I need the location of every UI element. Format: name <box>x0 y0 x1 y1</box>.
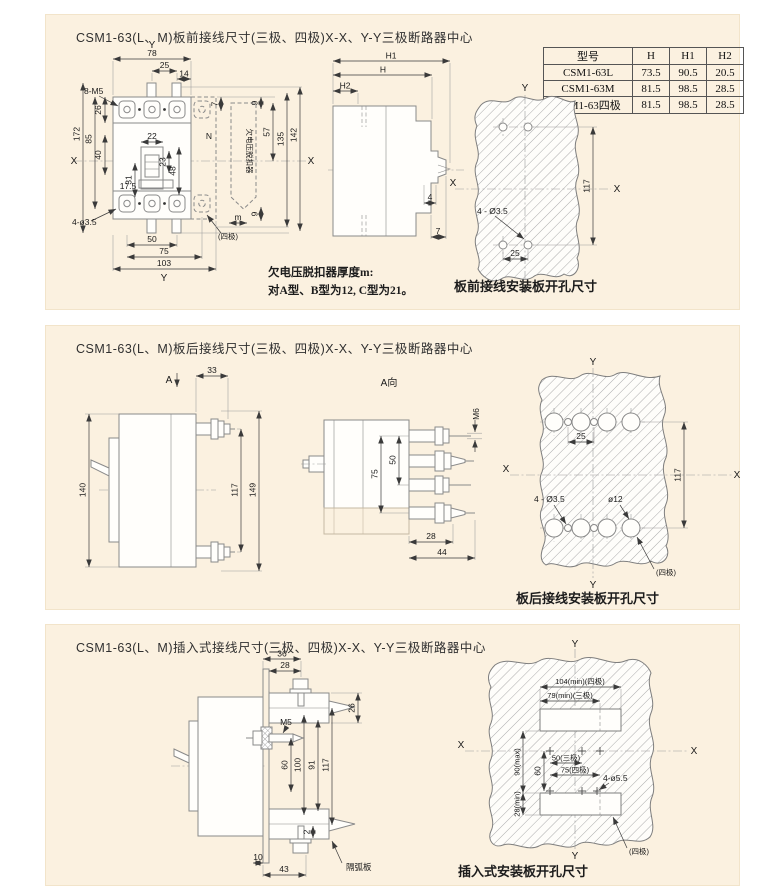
svg-text:75: 75 <box>370 469 380 479</box>
dimension-labels: 36 28 26 M5 60 100 91 117 2 10 43 隔弧板 <box>253 649 372 875</box>
svg-text:7: 7 <box>436 226 441 236</box>
rear-mounting-plate-drawing: Y Y X X 25 117 4 - Ø3.5 ø12 (四极) <box>504 360 739 592</box>
svg-text:44: 44 <box>437 547 447 557</box>
svg-text:4-ø3.5: 4-ø3.5 <box>72 217 97 227</box>
svg-text:25: 25 <box>160 60 170 70</box>
svg-text:90(max): 90(max) <box>513 748 522 776</box>
svg-text:4-ø5.5: 4-ø5.5 <box>603 773 628 783</box>
svg-text:(四极): (四极) <box>218 231 238 241</box>
four-pole-dashed-outline <box>191 97 216 219</box>
svg-text:7: 7 <box>210 101 220 106</box>
svg-text:m: m <box>234 212 241 222</box>
panel-plug-in-wiring: CSM1-63(L、M)插入式接线尺寸(三极、四极)X-X、Y-Y三极断路器中心 <box>45 624 740 886</box>
svg-text:85: 85 <box>84 134 94 144</box>
svg-text:ø12: ø12 <box>608 494 623 504</box>
note-line-1: 欠电压脱扣器厚度m: <box>268 265 413 283</box>
svg-text:75: 75 <box>159 246 169 256</box>
svg-text:135: 135 <box>276 132 286 146</box>
svg-text:117: 117 <box>673 468 683 482</box>
svg-text:43: 43 <box>279 864 289 874</box>
rear-side-view-drawing: A 33 140 117 149 <box>71 366 296 581</box>
n-pole-label: N <box>206 131 212 141</box>
svg-text:隔弧板: 隔弧板 <box>346 862 372 872</box>
panel2-title: CSM1-63(L、M)板后接线尺寸(三极、四极)X-X、Y-Y三极断路器中心 <box>76 338 473 357</box>
note-line-2: 对A型、B型为12, C型为21。 <box>268 283 413 301</box>
svg-text:28: 28 <box>280 660 290 670</box>
svg-text:X: X <box>503 464 510 475</box>
svg-text:17.5: 17.5 <box>120 181 137 191</box>
svg-text:25: 25 <box>576 431 586 441</box>
plug-in-side-view-drawing: 36 28 26 M5 60 100 91 117 2 10 43 隔弧板 <box>166 651 466 881</box>
col-h2: H2 <box>707 48 744 65</box>
side-view-drawing: H1 H H2 4 7 <box>328 53 468 265</box>
svg-text:57: 57 <box>262 127 272 137</box>
svg-text:100: 100 <box>293 758 303 772</box>
svg-text:50: 50 <box>388 455 398 465</box>
svg-text:X: X <box>734 470 741 481</box>
catalog-page: CSM1-63(L、M)板前接线尺寸(三极、四极)X-X、Y-Y三极断路器中心 <box>0 0 780 893</box>
breaker-side-outline <box>333 106 450 236</box>
svg-text:117: 117 <box>321 758 331 772</box>
panel-rear-wiring: CSM1-63(L、M)板后接线尺寸(三极、四极)X-X、Y-Y三极断路器中心 <box>45 325 740 610</box>
svg-text:X: X <box>691 746 698 757</box>
panel-front-wiring: CSM1-63(L、M)板前接线尺寸(三极、四极)X-X、Y-Y三极断路器中心 <box>45 14 740 310</box>
svg-text:103: 103 <box>157 258 171 268</box>
col-h1: H1 <box>670 48 707 65</box>
svg-text:50: 50 <box>147 234 157 244</box>
svg-text:60: 60 <box>280 760 290 770</box>
svg-text:78: 78 <box>147 48 157 58</box>
svg-text:X: X <box>308 156 315 167</box>
front-mounting-plate-drawing: Y Y X X 117 4 - Ø3.5 25 <box>451 83 631 295</box>
svg-text:A: A <box>166 375 173 386</box>
svg-text:79(min)(三极): 79(min)(三极) <box>547 690 593 700</box>
svg-text:Y: Y <box>522 83 529 94</box>
svg-text:149: 149 <box>248 483 258 497</box>
svg-text:117: 117 <box>230 483 240 497</box>
svg-text:117: 117 <box>582 179 592 193</box>
svg-text:4 - Ø3.5: 4 - Ø3.5 <box>534 494 565 504</box>
svg-text:H2: H2 <box>340 81 351 91</box>
svg-text:(四极): (四极) <box>656 567 676 577</box>
svg-text:(四极): (四极) <box>629 846 649 856</box>
breaker-outline <box>91 414 196 567</box>
svg-text:50(三极): 50(三极) <box>552 753 581 763</box>
svg-text:X: X <box>458 740 465 751</box>
col-model: 型号 <box>544 48 633 65</box>
plug-in-mounting-plate-drawing: Y Y X X 104(min)(四极) 79(min)(三极) 50(三极) … <box>459 641 704 867</box>
svg-text:75(四极): 75(四极) <box>561 765 590 775</box>
svg-text:172: 172 <box>72 127 82 141</box>
svg-text:9: 9 <box>250 211 260 216</box>
svg-text:H1: H1 <box>386 51 397 61</box>
svg-text:40: 40 <box>93 150 103 160</box>
svg-text:4 - Ø3.5: 4 - Ø3.5 <box>477 206 508 216</box>
svg-text:9: 9 <box>250 100 260 105</box>
front-plate-caption: 板前接线安装板开孔尺寸 <box>454 276 597 295</box>
svg-text:28: 28 <box>426 531 436 541</box>
svg-text:25: 25 <box>510 248 520 258</box>
svg-text:8-M5: 8-M5 <box>84 86 104 96</box>
body-outline <box>301 420 409 534</box>
svg-text:36: 36 <box>277 649 287 659</box>
svg-text:Y: Y <box>161 273 168 284</box>
a-view-drawing: A向 M6 50 75 28 44 <box>301 372 496 577</box>
svg-text:91: 91 <box>307 760 317 770</box>
svg-text:22: 22 <box>147 131 157 141</box>
breaker-outline <box>174 697 263 836</box>
svg-text:14: 14 <box>179 69 189 79</box>
svg-text:X: X <box>71 156 78 167</box>
svg-text:60: 60 <box>533 766 543 776</box>
svg-text:10: 10 <box>253 852 263 862</box>
uv-release-label: 欠电压脱扣器 <box>245 129 255 174</box>
svg-text:X: X <box>450 178 457 189</box>
svg-text:2: 2 <box>302 829 312 834</box>
table-row: CSM1-63L73.590.520.5 <box>544 65 744 81</box>
svg-text:23: 23 <box>158 157 168 167</box>
table-header-row: 型号 H H1 H2 <box>544 48 744 65</box>
rear-terminal-studs <box>409 427 475 523</box>
uv-release-note: 欠电压脱扣器厚度m: 对A型、B型为12, C型为21。 <box>268 265 413 301</box>
rear-plate-caption: 板后接线安装板开孔尺寸 <box>516 588 659 607</box>
svg-text:142: 142 <box>289 128 299 142</box>
svg-text:26: 26 <box>347 703 357 713</box>
svg-text:Y: Y <box>590 357 597 368</box>
svg-text:X: X <box>614 184 621 195</box>
svg-text:48: 48 <box>168 166 178 176</box>
hatched-plate <box>539 372 669 566</box>
svg-text:104(min)(四极): 104(min)(四极) <box>555 676 605 686</box>
col-h: H <box>633 48 670 65</box>
svg-text:28(min): 28(min) <box>513 791 522 817</box>
svg-text:M5: M5 <box>280 717 292 727</box>
plug-in-plate-caption: 插入式安装板开孔尺寸 <box>458 861 588 880</box>
svg-text:M6: M6 <box>471 408 481 420</box>
front-view-drawing: N 欠电压脱扣器 <box>71 39 321 291</box>
svg-text:140: 140 <box>78 483 88 497</box>
svg-text:Y: Y <box>572 639 579 650</box>
svg-text:A向: A向 <box>381 376 398 389</box>
svg-text:26: 26 <box>93 105 103 115</box>
svg-text:4: 4 <box>428 192 433 202</box>
svg-text:33: 33 <box>207 365 217 375</box>
svg-text:H: H <box>380 65 386 75</box>
dimension-labels: Y 78 25 14 8-M5 26 40 85 172 X 22 23 48 … <box>71 40 315 284</box>
